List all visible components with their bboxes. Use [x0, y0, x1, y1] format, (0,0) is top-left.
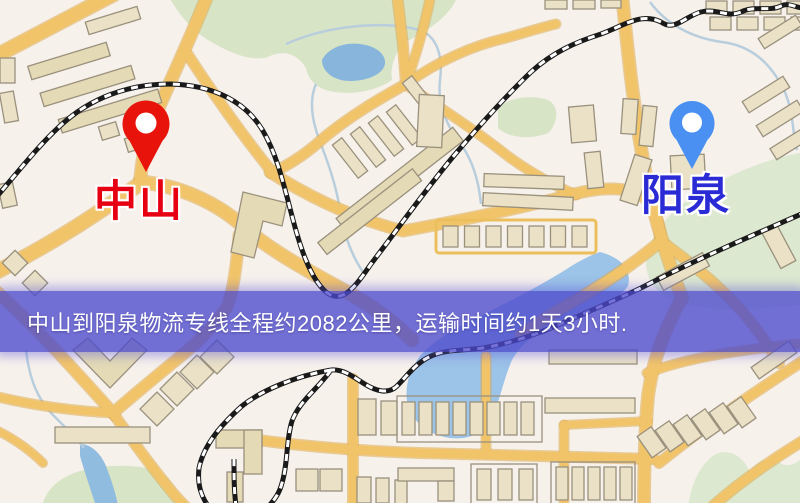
route-info-banner: 中山到阳泉物流专线全程约2082公里，运输时间约1天3小时.: [0, 291, 800, 352]
destination-label: 阳泉: [641, 175, 731, 218]
map-canvas[interactable]: [0, 0, 800, 503]
map-screenshot: 中山 阳泉 中山到阳泉物流专线全程约2082公里，运输时间约1天3小时.: [0, 0, 800, 503]
origin-pin-icon[interactable]: [123, 101, 170, 173]
route-info-text: 中山到阳泉物流专线全程约2082公里，运输时间约1天3小时.: [27, 306, 628, 338]
origin-label: 中山: [94, 181, 184, 224]
